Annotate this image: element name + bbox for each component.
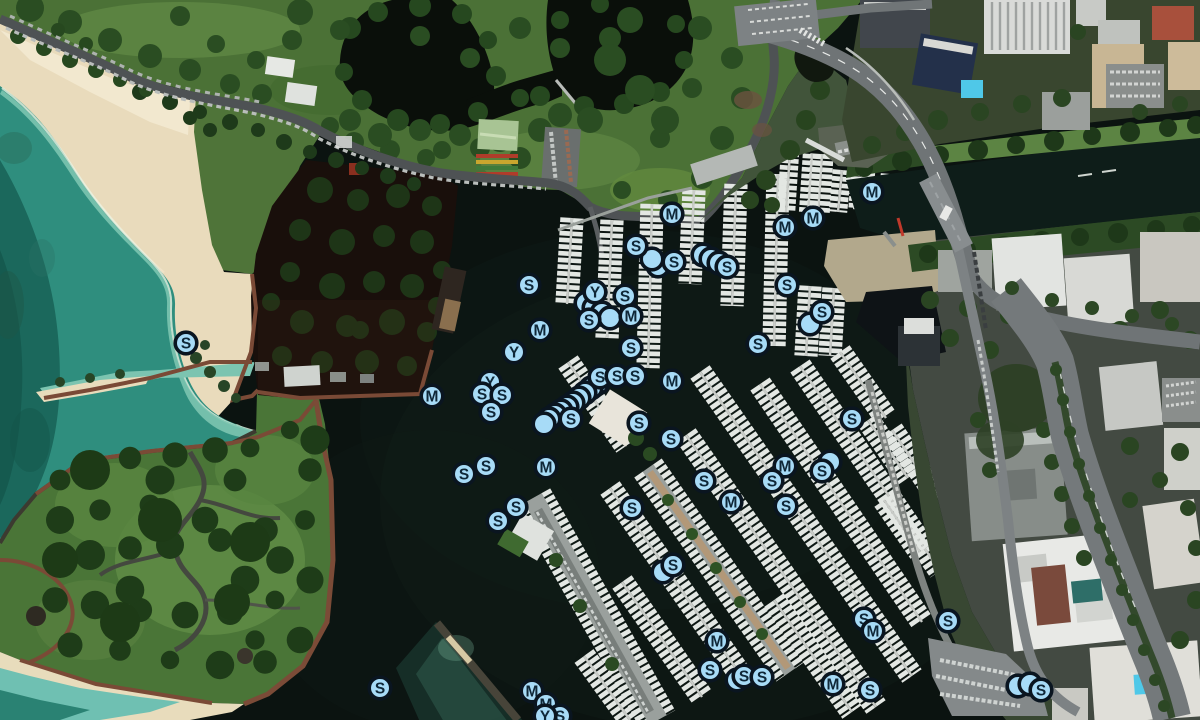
svg-text:M: M [779,220,792,237]
svg-text:S: S [753,337,763,354]
svg-text:S: S [493,514,503,531]
svg-text:M: M [666,374,679,391]
svg-text:S: S [620,289,630,306]
svg-text:Y: Y [590,285,601,302]
svg-text:S: S [459,467,469,484]
svg-text:M: M [807,211,820,228]
svg-text:S: S [486,405,496,422]
svg-text:S: S [781,499,791,516]
svg-text:Y: Y [540,709,551,720]
svg-text:M: M [867,624,880,641]
svg-text:M: M [426,389,439,406]
svg-text:Y: Y [509,345,520,362]
svg-text:M: M [625,309,638,326]
svg-text:S: S [630,369,640,386]
svg-text:S: S [699,474,709,491]
svg-text:S: S [634,416,644,433]
svg-text:S: S [782,278,792,295]
svg-text:M: M [666,207,679,224]
svg-text:S: S [584,313,594,330]
svg-text:M: M [711,634,724,651]
svg-text:S: S [612,369,622,386]
svg-text:S: S [626,341,636,358]
svg-text:M: M [725,495,738,512]
svg-text:S: S [627,501,637,518]
svg-text:S: S [865,683,875,700]
svg-text:M: M [534,323,547,340]
svg-text:S: S [739,669,749,686]
svg-text:S: S [669,255,679,272]
svg-text:S: S [817,464,827,481]
svg-text:S: S [524,278,534,295]
svg-text:M: M [827,677,840,694]
svg-text:S: S [595,370,605,387]
svg-text:S: S [631,239,641,256]
svg-text:S: S [943,614,953,631]
svg-text:S: S [705,663,715,680]
svg-text:M: M [866,185,879,202]
svg-text:S: S [817,305,827,322]
svg-text:S: S [511,500,521,517]
svg-text:M: M [540,460,553,477]
svg-text:S: S [757,670,767,687]
svg-text:S: S [668,558,678,575]
svg-text:S: S [666,432,676,449]
svg-text:S: S [1036,683,1046,700]
svg-text:S: S [375,681,385,698]
svg-text:S: S [181,336,191,353]
svg-text:S: S [722,260,732,277]
svg-text:S: S [481,459,491,476]
svg-text:S: S [566,412,576,429]
svg-text:S: S [847,412,857,429]
svg-text:S: S [767,474,777,491]
